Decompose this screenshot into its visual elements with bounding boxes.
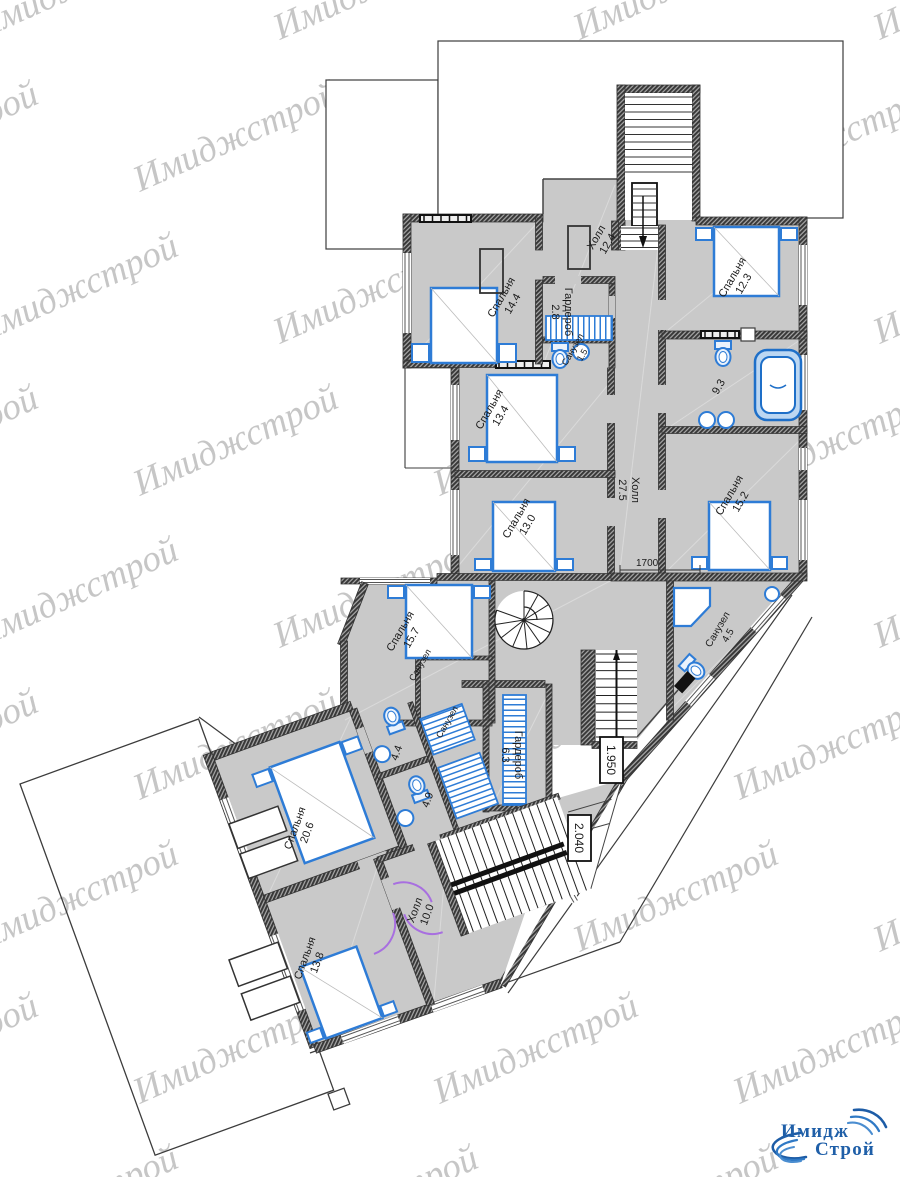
svg-text:Имиджстрой: Имиджстрой [126, 377, 345, 504]
svg-text:Имиджстрой: Имиджстрой [426, 985, 645, 1112]
svg-text:Имиджстрой: Имиджстрой [266, 1137, 485, 1177]
svg-text:Имиджстрой: Имиджстрой [566, 1137, 785, 1177]
svg-text:Имиджстрой: Имиджстрой [0, 225, 185, 352]
svg-text:Имиджстрой: Имиджстрой [0, 377, 45, 504]
svg-text:Имиджстрой: Имиджстрой [0, 1137, 185, 1177]
svg-text:Имиджстрой: Имиджстрой [866, 225, 900, 352]
svg-text:27.5: 27.5 [616, 479, 628, 500]
svg-text:Имиджстрой: Имиджстрой [0, 985, 45, 1112]
svg-text:Имиджстрой: Имиджстрой [726, 681, 900, 808]
svg-text:2.040: 2.040 [572, 823, 586, 853]
svg-text:Гардероб: Гардероб [562, 288, 574, 336]
svg-text:6.3: 6.3 [499, 747, 511, 762]
svg-text:1.950: 1.950 [604, 745, 618, 775]
svg-text:Имиджстрой: Имиджстрой [0, 833, 185, 960]
svg-text:Имиджстрой: Имиджстрой [866, 529, 900, 656]
svg-text:Гардероб: Гардероб [512, 731, 524, 779]
svg-text:2.8: 2.8 [549, 304, 561, 319]
svg-text:Имиджстрой: Имиджстрой [126, 73, 345, 200]
svg-text:Имиджстрой: Имиджстрой [0, 73, 45, 200]
svg-text:1700: 1700 [636, 558, 659, 569]
svg-text:Строй: Строй [815, 1139, 875, 1160]
svg-text:Имиджстрой: Имиджстрой [0, 0, 185, 49]
svg-text:Холл: Холл [629, 477, 641, 503]
svg-text:Имиджстрой: Имиджстрой [866, 833, 900, 960]
svg-text:Имиджстрой: Имиджстрой [726, 985, 900, 1112]
svg-text:Имиджстрой: Имиджстрой [866, 0, 900, 49]
svg-text:Имиджстрой: Имиджстрой [0, 529, 185, 656]
